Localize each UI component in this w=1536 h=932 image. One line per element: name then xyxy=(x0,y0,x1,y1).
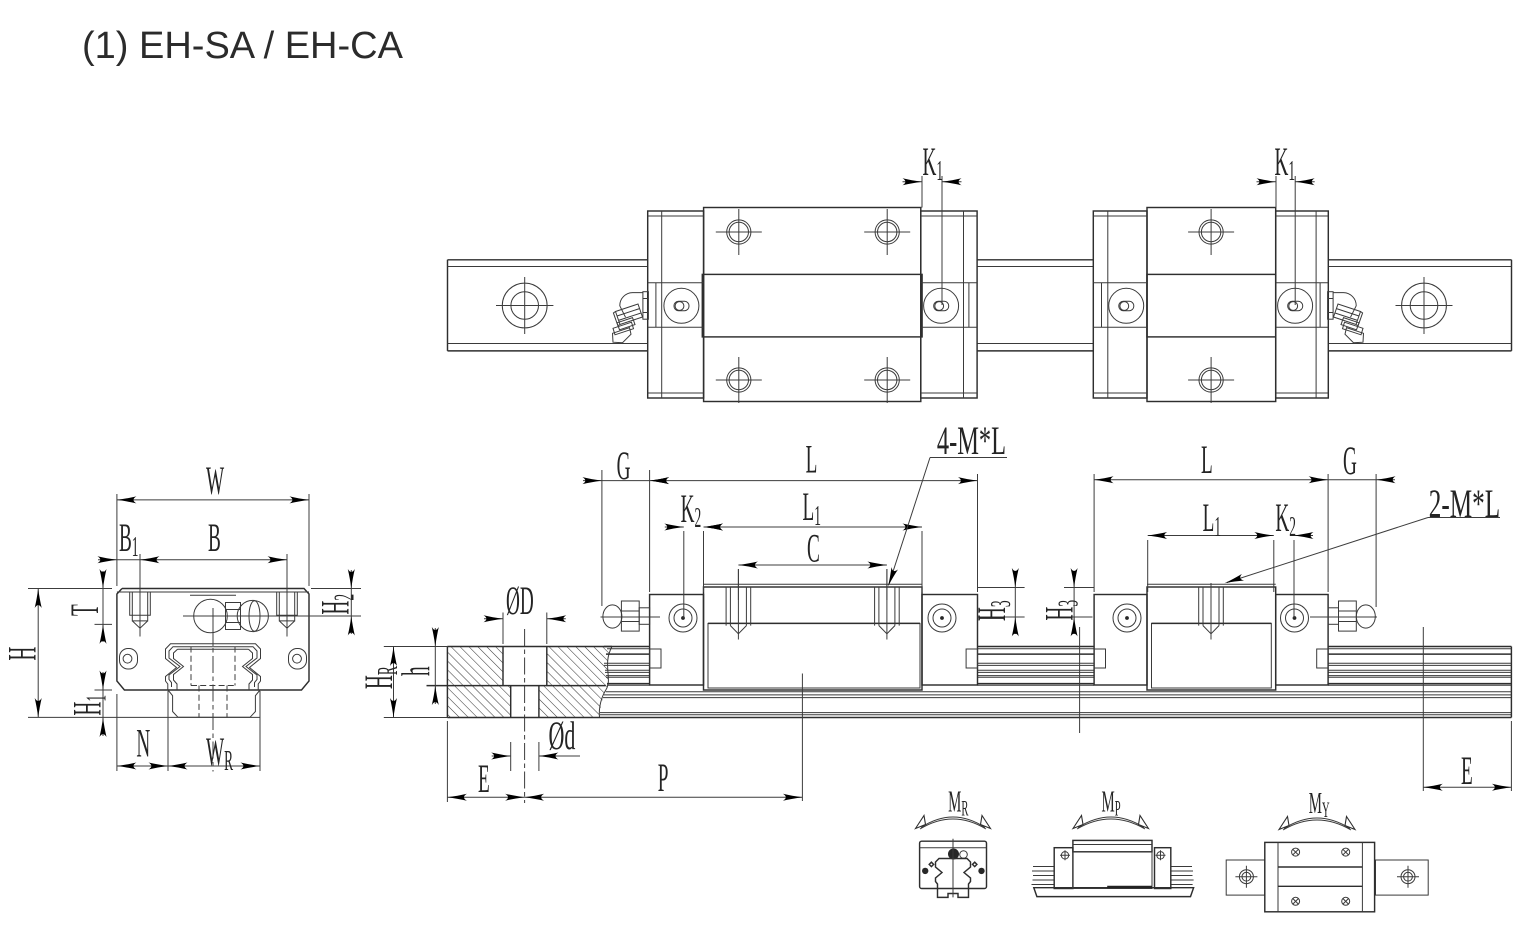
svg-text:K1: K1 xyxy=(1275,139,1296,186)
svg-text:L: L xyxy=(806,437,818,482)
svg-text:T: T xyxy=(62,604,107,616)
svg-text:C: C xyxy=(807,526,820,571)
svg-text:L1: L1 xyxy=(1203,495,1221,542)
svg-text:K2: K2 xyxy=(1275,495,1296,542)
svg-text:MP: MP xyxy=(1102,785,1121,821)
svg-text:L: L xyxy=(1201,437,1213,482)
svg-text:H: H xyxy=(0,647,44,661)
svg-text:H3: H3 xyxy=(969,600,1016,621)
svg-text:2-M*L: 2-M*L xyxy=(1429,482,1500,526)
svg-text:H3: H3 xyxy=(1037,600,1084,621)
svg-text:4-M*L: 4-M*L xyxy=(937,419,1006,464)
svg-text:ØD: ØD xyxy=(506,578,534,623)
svg-text:G: G xyxy=(1343,438,1357,483)
svg-text:(1) EH-SA / EH-CA: (1) EH-SA / EH-CA xyxy=(82,25,404,67)
svg-text:E: E xyxy=(478,756,490,801)
svg-text:B1: B1 xyxy=(119,515,139,562)
svg-text:B: B xyxy=(208,515,221,560)
svg-text:W: W xyxy=(206,458,224,503)
svg-text:WR: WR xyxy=(206,729,233,776)
svg-text:L1: L1 xyxy=(803,484,821,531)
svg-text:MR: MR xyxy=(948,785,969,821)
svg-text:H2: H2 xyxy=(313,594,360,615)
svg-text:E: E xyxy=(1461,748,1473,793)
svg-text:K2: K2 xyxy=(681,486,702,533)
svg-text:P: P xyxy=(658,755,669,800)
svg-text:MY: MY xyxy=(1309,786,1330,822)
svg-text:G: G xyxy=(617,443,631,488)
svg-text:N: N xyxy=(136,721,150,766)
svg-text:h: h xyxy=(393,666,438,676)
svg-text:H1: H1 xyxy=(65,695,112,716)
svg-text:K1: K1 xyxy=(923,139,944,186)
svg-text:Ød: Ød xyxy=(549,713,576,758)
